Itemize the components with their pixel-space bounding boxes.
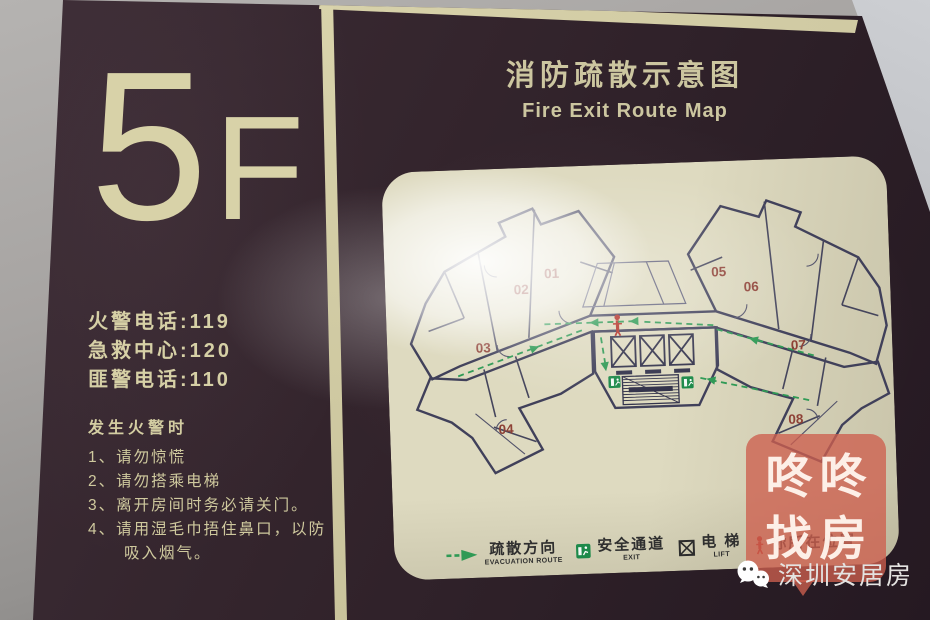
wechat-icon [736,560,770,588]
emergency-line-fire: 火警电话:119 [88,308,232,337]
legend-exit-cn: 安全通道 [597,536,665,553]
elevator-shafts-icon [611,334,694,375]
brand-name: 深圳安居房 [778,556,913,592]
elevator-icon [678,539,696,557]
unit-label-08: 08 [788,411,804,427]
fire-instructions-list: 1、请勿惊慌 2、请勿搭乘电梯 3、离开房间时务必请关门。 4、请用湿毛巾捂住鼻… [88,446,330,566]
instruction-item: 3、离开房间时务必请关门。 [88,494,330,518]
emergency-line-police: 匪警电话:110 [88,366,232,395]
unit-label-04: 04 [498,421,514,437]
map-title-en: Fire Exit Route Map [345,100,905,123]
unit-label-01: 01 [544,266,560,282]
map-title-cn: 消防疏散示意图 [345,52,905,94]
staircase-icon [622,375,679,405]
fire-instructions-heading: 发生火警时 [88,414,188,438]
watermark-line1: 咚咚 [759,446,874,508]
map-title: 消防疏散示意图 Fire Exit Route Map [345,52,905,123]
instruction-item: 1、请勿惊慌 [88,446,330,470]
unit-label-03: 03 [475,340,491,356]
unit-label-07: 07 [791,337,807,353]
floor-suffix: F [214,75,304,263]
unit-label-05: 05 [711,264,727,280]
legend-evacuation-cn: 疏散方向 [489,540,557,557]
legend-lift-en: LIFT [713,551,730,559]
exit-sign-icon-right [681,376,693,388]
legend-evacuation-en: EVACUATION ROUTE [485,557,563,567]
emergency-line-ambulance: 急救中心:120 [88,337,232,366]
evacuation-arrow-icon [444,548,478,563]
instruction-item: 2、请勿搭乘电梯 [88,470,330,494]
floor-label: 5 F [90,52,304,263]
exit-sign-icon-left [608,376,620,388]
emergency-phone-list: 火警电话:119 急救中心:120 匪警电话:110 [88,308,232,395]
exit-sign-icon [575,543,592,560]
instruction-item: 4、请用湿毛巾捂住鼻口，以防吸入烟气。 [88,518,330,566]
unit-label-06: 06 [743,279,759,295]
legend-exit: 安全通道 EXIT [575,536,666,563]
legend-evacuation-route: 疏散方向 EVACUATION ROUTE [444,540,563,568]
brand-footer: 深圳安居房 [736,556,913,592]
legend-lift: 电 梯 LIFT [678,534,742,560]
legend-exit-en: EXIT [623,554,640,562]
you-are-here-icon [613,314,623,336]
floor-number: 5 [90,52,208,240]
unit-label-02: 02 [513,282,529,298]
evacuation-route-arrows [528,313,760,391]
core-walls [590,311,719,408]
legend-lift-cn: 电 梯 [701,534,742,550]
